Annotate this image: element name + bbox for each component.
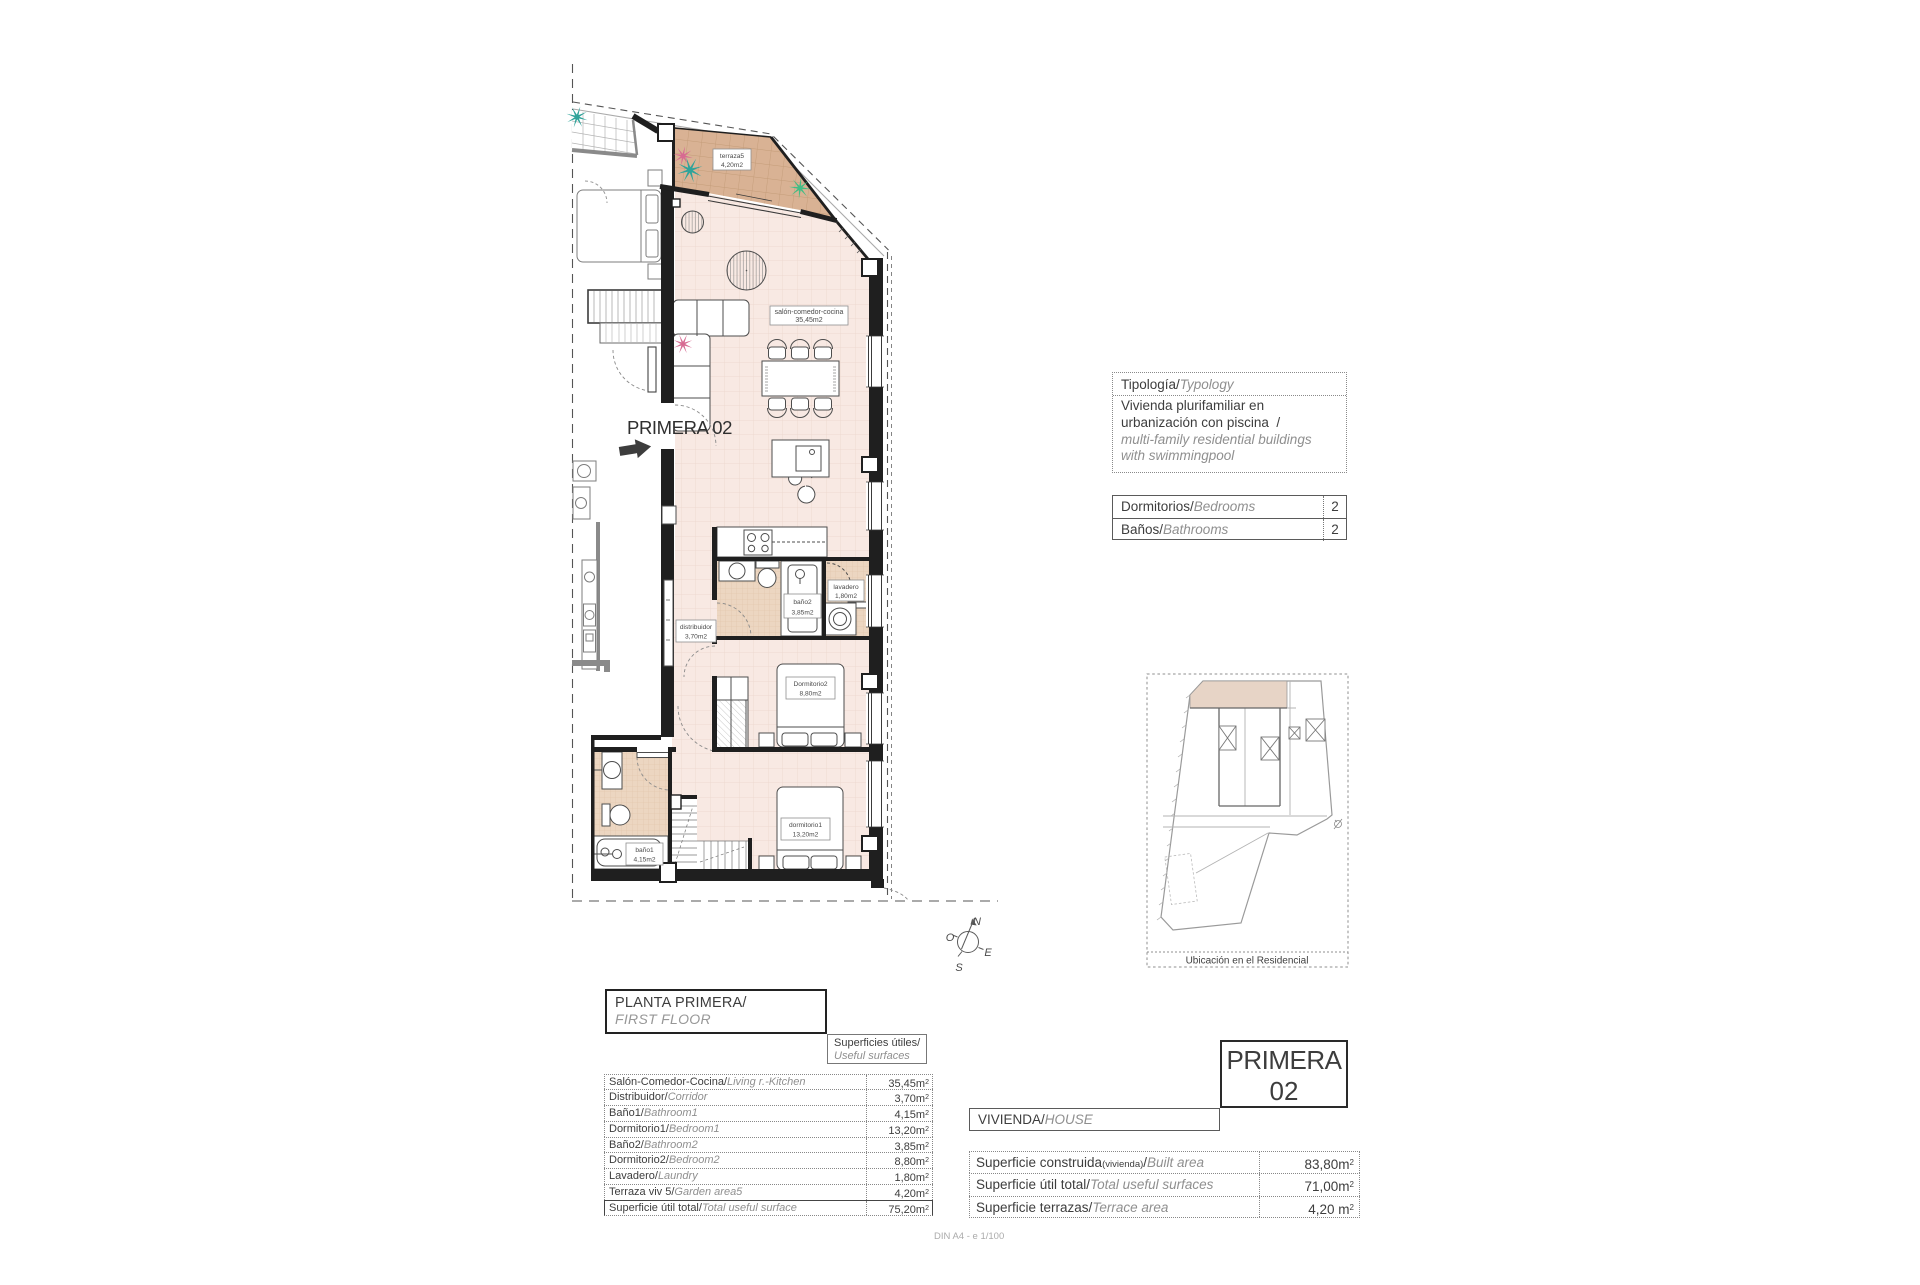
svg-text:distribuidor: distribuidor bbox=[680, 624, 713, 631]
svg-text:terraza5: terraza5 bbox=[720, 153, 745, 160]
svg-text:S: S bbox=[955, 962, 963, 974]
svg-text:Dormitorio2: Dormitorio2 bbox=[793, 681, 827, 688]
svg-text:13,20m2: 13,20m2 bbox=[793, 832, 819, 839]
svg-text:DIN A4 - e 1/100: DIN A4 - e 1/100 bbox=[934, 1231, 1004, 1242]
svg-text:baño1: baño1 bbox=[635, 847, 654, 854]
svg-text:E: E bbox=[984, 947, 992, 959]
svg-text:salón-comedor-cocina: salón-comedor-cocina bbox=[775, 309, 844, 316]
svg-text:lavadero: lavadero bbox=[833, 584, 859, 591]
svg-text:dormitorio1: dormitorio1 bbox=[789, 822, 822, 829]
svg-text:baño2: baño2 bbox=[793, 599, 812, 606]
svg-text:PRIMERA 02: PRIMERA 02 bbox=[627, 417, 732, 438]
svg-text:3,85m2: 3,85m2 bbox=[792, 609, 814, 616]
svg-text:3,70m2: 3,70m2 bbox=[685, 634, 707, 641]
svg-text:4,20m2: 4,20m2 bbox=[721, 162, 743, 169]
svg-text:Ubicación en el Residencial: Ubicación en el Residencial bbox=[1186, 956, 1309, 967]
svg-text:1,80m2: 1,80m2 bbox=[835, 593, 857, 600]
svg-text:N: N bbox=[973, 916, 981, 928]
svg-text:O: O bbox=[946, 932, 955, 944]
svg-text:4,15m2: 4,15m2 bbox=[634, 857, 656, 864]
svg-text:35,45m2: 35,45m2 bbox=[795, 317, 822, 324]
svg-text:8,80m2: 8,80m2 bbox=[800, 691, 822, 698]
